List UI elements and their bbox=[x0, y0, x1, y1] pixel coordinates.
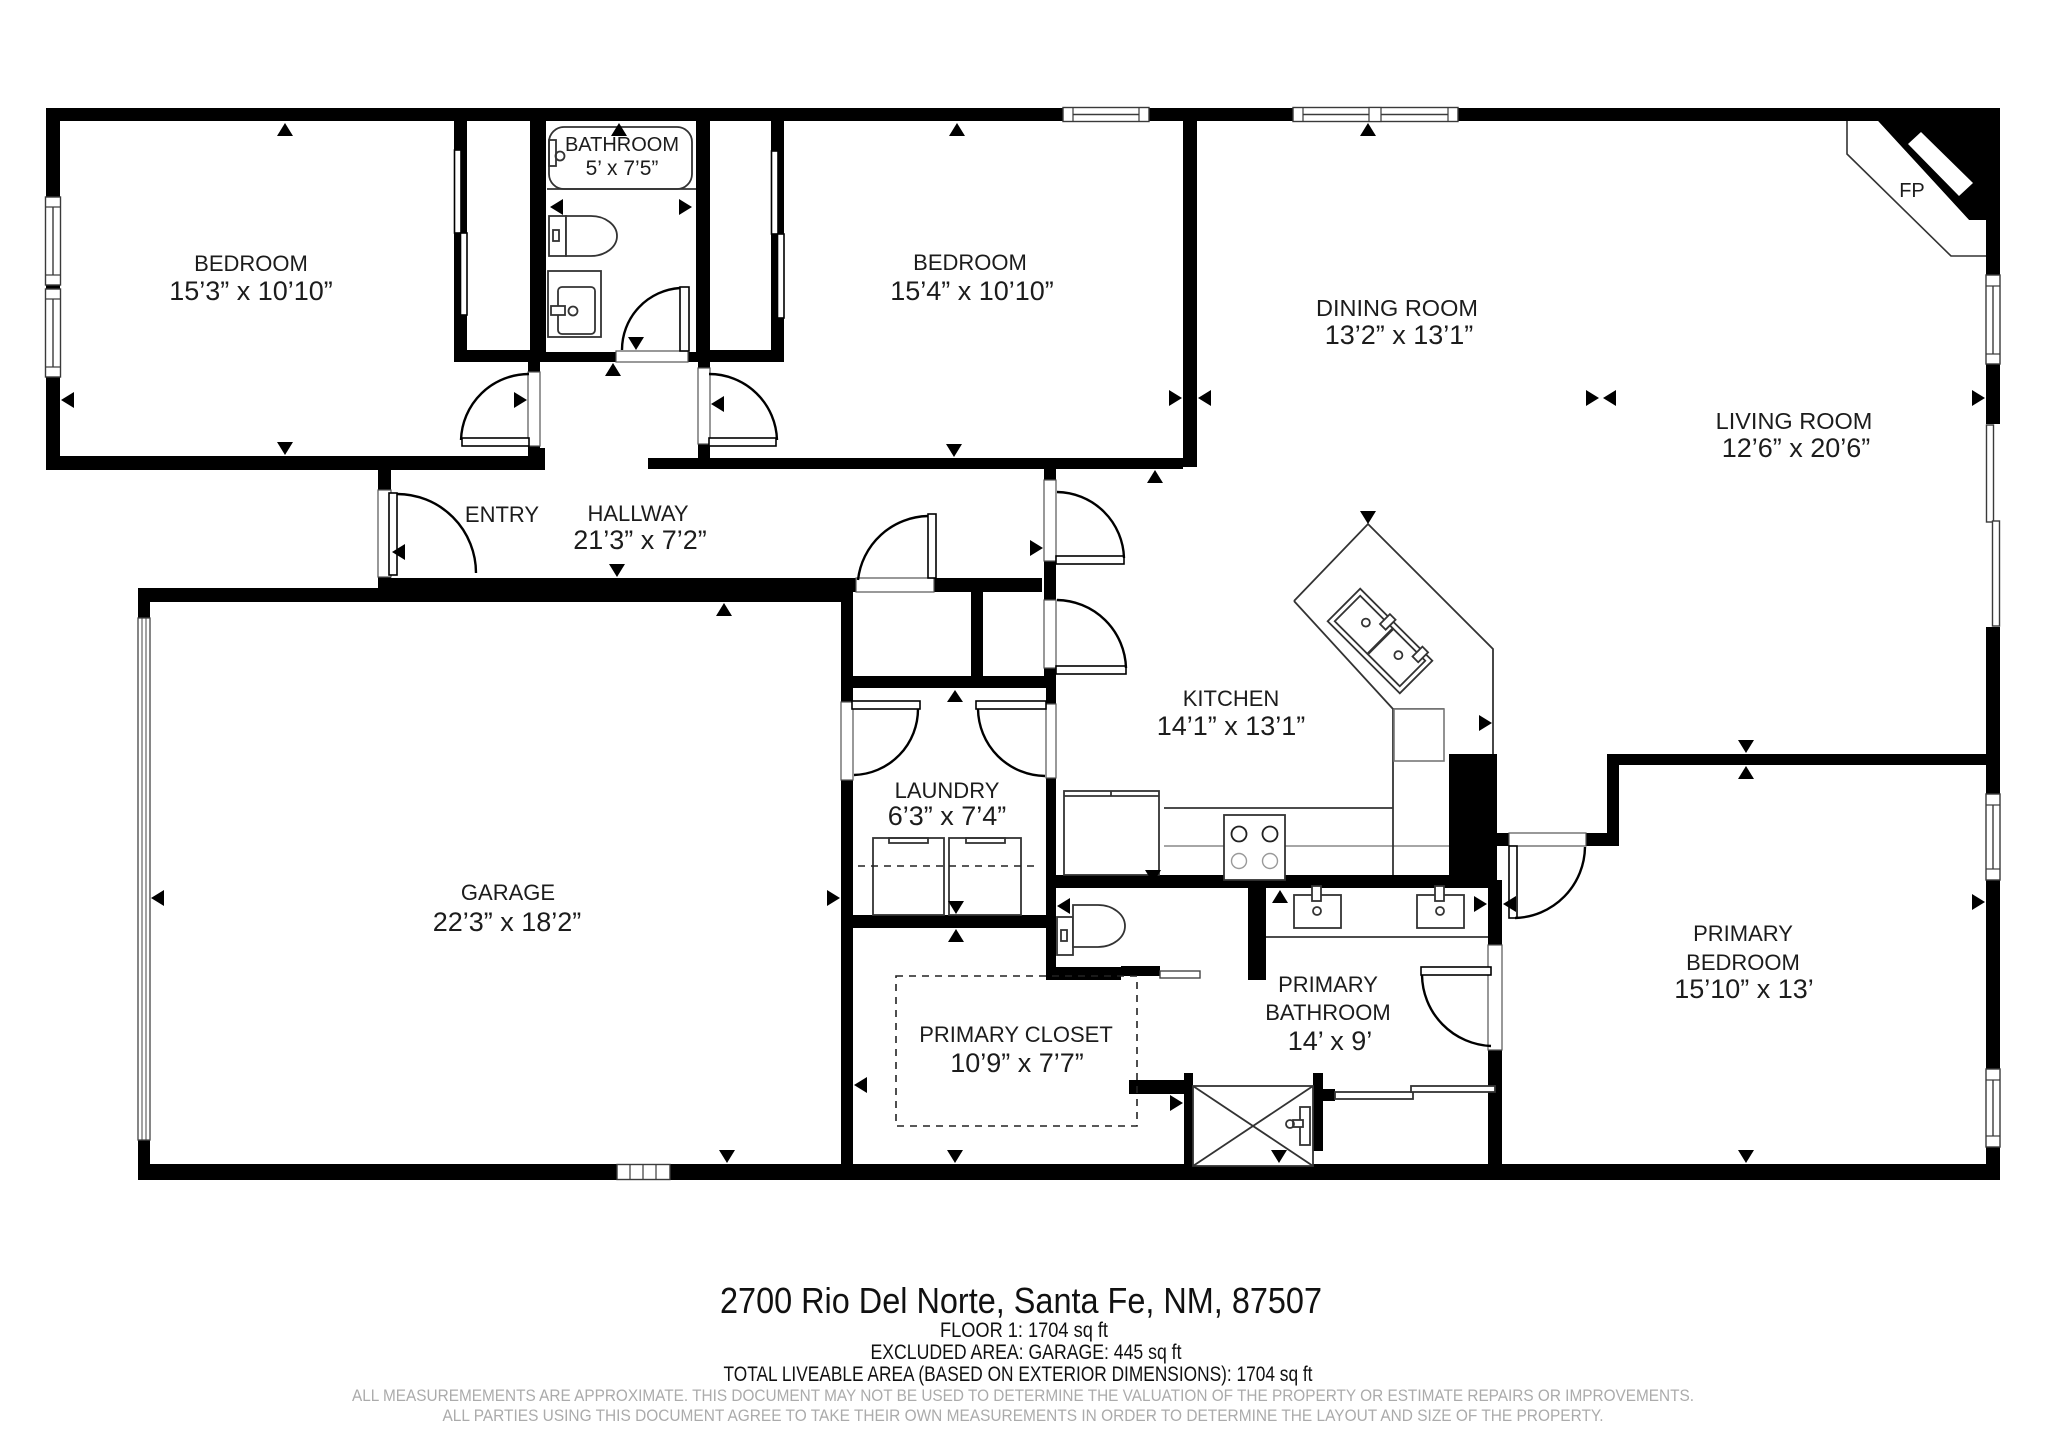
svg-text:13’2” x 13’1”: 13’2” x 13’1” bbox=[1325, 320, 1474, 350]
svg-text:BEDROOM: BEDROOM bbox=[194, 251, 308, 276]
svg-text:BATHROOM: BATHROOM bbox=[1265, 1000, 1390, 1025]
svg-text:DINING ROOM: DINING ROOM bbox=[1316, 295, 1478, 321]
svg-text:BATHROOM: BATHROOM bbox=[565, 134, 679, 156]
svg-text:HALLWAY: HALLWAY bbox=[587, 501, 688, 526]
svg-text:12’6” x 20’6”: 12’6” x 20’6” bbox=[1722, 433, 1871, 463]
svg-text:FP: FP bbox=[1899, 180, 1925, 202]
svg-text:EXCLUDED AREA: GARAGE: 445 sq: EXCLUDED AREA: GARAGE: 445 sq ft bbox=[871, 1341, 1182, 1364]
svg-text:15’3” x 10’10”: 15’3” x 10’10” bbox=[169, 276, 333, 306]
svg-text:22’3” x 18’2”: 22’3” x 18’2” bbox=[433, 907, 582, 937]
svg-text:14’ x 9’: 14’ x 9’ bbox=[1288, 1026, 1373, 1056]
svg-text:ALL MEASUREMEMENTS ARE APPROXI: ALL MEASUREMEMENTS ARE APPROXIMATE. THIS… bbox=[352, 1386, 1694, 1405]
svg-text:FLOOR 1: 1704 sq ft: FLOOR 1: 1704 sq ft bbox=[940, 1319, 1108, 1342]
svg-text:LAUNDRY: LAUNDRY bbox=[895, 778, 1000, 803]
svg-text:ENTRY: ENTRY bbox=[465, 502, 539, 527]
svg-text:PRIMARY CLOSET: PRIMARY CLOSET bbox=[919, 1022, 1113, 1047]
svg-text:KITCHEN: KITCHEN bbox=[1183, 686, 1280, 711]
svg-text:GARAGE: GARAGE bbox=[461, 880, 555, 905]
svg-text:PRIMARY: PRIMARY bbox=[1693, 921, 1793, 946]
svg-text:PRIMARY: PRIMARY bbox=[1278, 972, 1378, 997]
svg-text:ALL PARTIES USING THIS DOCUMEN: ALL PARTIES USING THIS DOCUMENT AGREE TO… bbox=[443, 1406, 1604, 1425]
svg-text:5’ x 7’5”: 5’ x 7’5” bbox=[586, 157, 659, 180]
svg-text:BEDROOM: BEDROOM bbox=[1686, 950, 1800, 975]
svg-text:10’9” x 7’7”: 10’9” x 7’7” bbox=[950, 1048, 1084, 1078]
svg-text:14’1” x 13’1”: 14’1” x 13’1” bbox=[1157, 711, 1306, 741]
svg-text:BEDROOM: BEDROOM bbox=[913, 250, 1027, 275]
svg-text:6’3” x 7’4”: 6’3” x 7’4” bbox=[888, 801, 1007, 831]
svg-text:TOTAL LIVEABLE AREA (BASED ON: TOTAL LIVEABLE AREA (BASED ON EXTERIOR D… bbox=[724, 1363, 1313, 1386]
svg-text:2700 Rio Del Norte, Santa Fe,: 2700 Rio Del Norte, Santa Fe, NM, 87507 bbox=[720, 1280, 1322, 1321]
svg-text:15’4” x 10’10”: 15’4” x 10’10” bbox=[890, 276, 1054, 306]
svg-text:21’3” x 7’2”: 21’3” x 7’2” bbox=[573, 525, 707, 555]
svg-text:15’10” x 13’: 15’10” x 13’ bbox=[1674, 974, 1814, 1004]
svg-text:LIVING ROOM: LIVING ROOM bbox=[1716, 408, 1873, 434]
